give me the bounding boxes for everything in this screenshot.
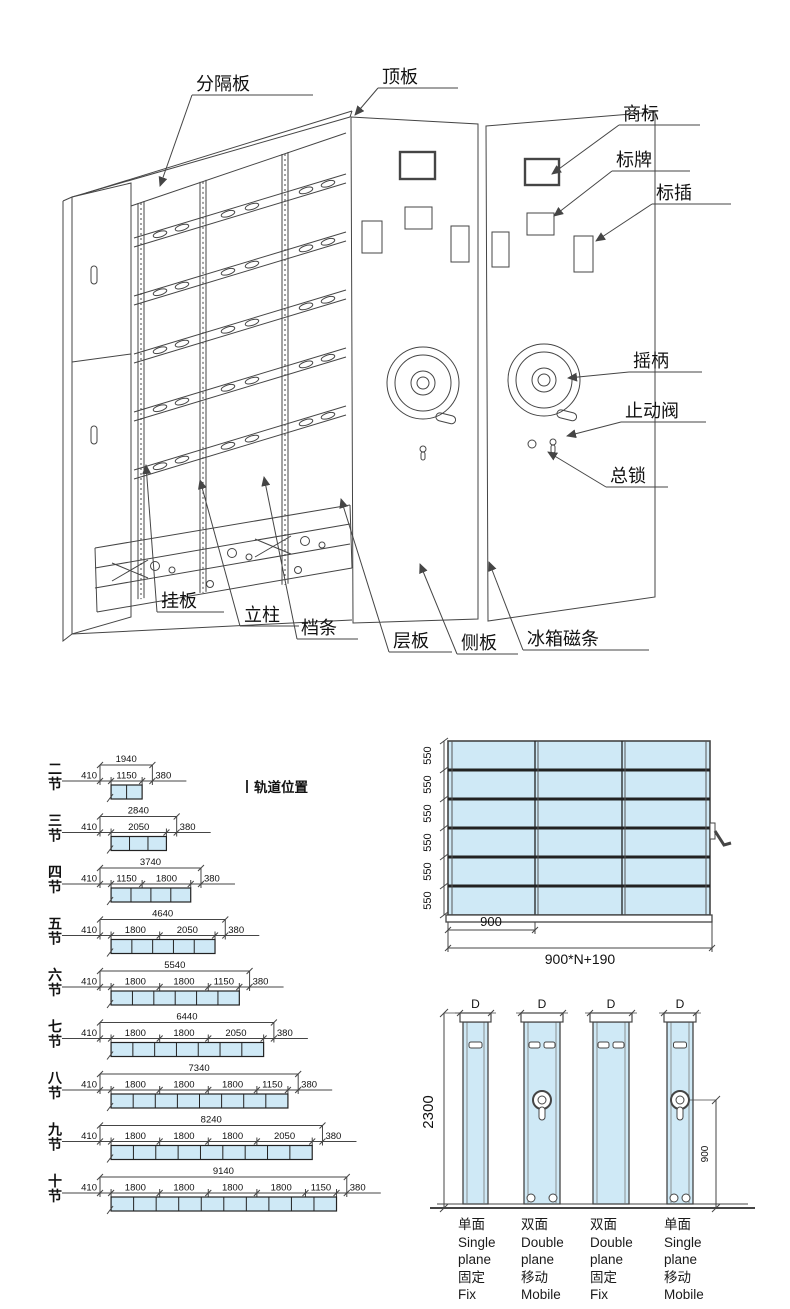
- side-view-diagram: DDDD2300900: [420, 997, 755, 1212]
- caption-line: Single: [458, 1234, 528, 1252]
- caption-line: 移动: [664, 1269, 734, 1287]
- crank-wheel: [387, 347, 459, 419]
- caption-line: 双面: [590, 1216, 660, 1234]
- caption-line: Mobile: [664, 1286, 734, 1304]
- leader-dingban: [355, 88, 378, 115]
- crank-wheel: [508, 344, 580, 416]
- seg-dim: 380: [204, 874, 220, 885]
- label-zongsuo: 总锁: [610, 466, 646, 486]
- pitch-dim: 550: [422, 804, 434, 822]
- label-zhidongfa: 止动阀: [625, 401, 679, 421]
- leader-yaobing: [568, 372, 629, 378]
- row-label: 八: [47, 1070, 63, 1086]
- row-label: 节: [48, 931, 62, 947]
- side-view-column-1: D: [455, 997, 496, 1204]
- seg-dim: 380: [350, 1183, 366, 1194]
- seg-dim: 1150: [262, 1080, 282, 1091]
- row-label: 六: [48, 967, 62, 983]
- caption-line: 固定: [458, 1269, 528, 1287]
- size-row-七节: 七节6440410180018002050380: [48, 1012, 308, 1060]
- shelving-unit-drawing: [63, 111, 655, 641]
- seg-dim: 1800: [173, 1028, 194, 1039]
- total-dim: 3740: [140, 857, 161, 868]
- pitch-dim: 550: [422, 746, 434, 764]
- seg-dim: 410: [81, 822, 97, 833]
- seg-dim: 1800: [271, 1183, 292, 1194]
- total-dim: 9140: [213, 1166, 234, 1177]
- depth-label: D: [538, 997, 547, 1011]
- part-labels: 分隔板顶板商标标牌标插摇柄止动阀总锁挂板立柱档条层板侧板冰箱磁条: [146, 67, 731, 654]
- label-biaopai: 标牌: [616, 150, 652, 170]
- size-row-六节: 六节5540410180018001150380: [48, 960, 284, 1008]
- door-handle: [91, 266, 97, 284]
- side-view-column-4: D: [659, 997, 701, 1204]
- bay-width-dim: 900: [480, 914, 502, 929]
- seg-dim: 1800: [125, 1183, 146, 1194]
- caption-line: plane: [521, 1251, 591, 1269]
- stop-valve: [528, 440, 536, 448]
- size-row-五节: 五节464041018002050380: [48, 909, 259, 957]
- seg-dim: 1150: [116, 771, 136, 782]
- caption-col-4: 单面Singleplane移动Mobile: [664, 1216, 734, 1304]
- pitch-dim: 550: [422, 862, 434, 880]
- seg-dim: 380: [155, 771, 171, 782]
- row-label: 节: [48, 982, 62, 998]
- diagram-canvas: 分隔板顶板商标标牌标插摇柄止动阀总锁挂板立柱档条层板侧板冰箱磁条二节194041…: [0, 0, 790, 1309]
- seg-dim: 1800: [173, 1131, 194, 1142]
- height-dim: 2300: [420, 1095, 437, 1128]
- label-dangtiao: 档条: [301, 618, 337, 638]
- size-row-十节: 十节914041018001800180018001150380: [48, 1166, 381, 1214]
- seg-dim: 380: [325, 1131, 341, 1142]
- seg-dim: 1800: [125, 977, 146, 988]
- side-panel-1: [351, 117, 478, 623]
- caption-line: 单面: [458, 1216, 528, 1234]
- row-label: 节: [48, 828, 62, 844]
- total-dim: 8240: [201, 1115, 222, 1126]
- row-label: 七: [48, 1019, 62, 1035]
- pitch-dim: 550: [422, 775, 434, 793]
- label-biaocha: 标插: [656, 183, 692, 203]
- seg-dim: 1800: [125, 925, 146, 936]
- total-dim: 7340: [189, 1063, 210, 1074]
- side-view-column-2: D: [516, 997, 568, 1204]
- total-dim: 1940: [116, 754, 137, 765]
- row-label: 节: [48, 1188, 62, 1204]
- size-row-二节: 二节19404101150380: [48, 754, 186, 802]
- label-cengban: 层板: [393, 631, 429, 651]
- row-label: 五: [48, 916, 62, 932]
- total-dim: 4640: [152, 909, 173, 920]
- caption-line: Double: [590, 1234, 660, 1252]
- trademark-plate: [400, 152, 435, 179]
- seg-dim: 1150: [311, 1183, 331, 1194]
- seg-dim: 1800: [173, 1080, 194, 1091]
- seg-dim: 410: [81, 1028, 97, 1039]
- label-fengeban: 分隔板: [196, 74, 250, 94]
- pitch-dim: 550: [422, 833, 434, 851]
- size-row-八节: 八节73404101800180018001150380: [47, 1063, 332, 1111]
- caption-col-1: 单面Singleplane固定Fix: [458, 1216, 528, 1304]
- seg-dim: 410: [81, 977, 97, 988]
- seg-dim: 380: [277, 1028, 293, 1039]
- row-label: 节: [48, 1034, 62, 1050]
- seg-dim: 380: [180, 822, 196, 833]
- front-view-diagram: 550550550550550550900900*N+190: [422, 738, 731, 967]
- depth-label: D: [607, 997, 616, 1011]
- seg-dim: 410: [81, 1131, 97, 1142]
- label-guaban: 挂板: [161, 591, 197, 611]
- caption-line: 单面: [664, 1216, 734, 1234]
- caption-line: 双面: [521, 1216, 591, 1234]
- caption-line: plane: [664, 1251, 734, 1269]
- size-row-三节: 三节28404102050380: [48, 806, 211, 854]
- wheel-foot: [670, 1194, 678, 1202]
- caption-col-3: 双面Doubleplane固定Fix: [590, 1216, 660, 1304]
- seg-dim: 1800: [125, 1080, 146, 1091]
- seg-dim: 2050: [274, 1131, 295, 1142]
- caption-line: 移动: [521, 1269, 591, 1287]
- seg-dim: 1800: [173, 977, 194, 988]
- seg-dim: 380: [253, 977, 269, 988]
- caption-line: 固定: [590, 1269, 660, 1287]
- total-width-dim: 900*N+190: [545, 951, 616, 967]
- seg-dim: 1800: [173, 1183, 194, 1194]
- row-label: 节: [48, 776, 62, 792]
- size-row-九节: 九节82404101800180018002050380: [47, 1115, 356, 1163]
- caption-line: Fix: [458, 1286, 528, 1304]
- total-dim: 5540: [164, 960, 185, 971]
- crank-icon: [533, 1091, 551, 1109]
- shelf-bar: [111, 1146, 312, 1160]
- seg-dim: 1800: [222, 1080, 243, 1091]
- crank-height-dim: 900: [700, 1145, 711, 1162]
- label-dingban: 顶板: [382, 67, 418, 87]
- seg-dim: 2050: [128, 822, 149, 833]
- crank-icon: [671, 1091, 689, 1109]
- row-label: 十: [48, 1173, 62, 1189]
- leader-biaopai: [554, 171, 612, 216]
- side-panel-2: [486, 112, 655, 621]
- seg-dim: 410: [81, 1080, 97, 1091]
- row-label: 节: [48, 1085, 62, 1101]
- wheel-foot: [527, 1194, 535, 1202]
- label-shangbiao: 商标: [623, 104, 659, 124]
- seg-dim: 1800: [222, 1183, 243, 1194]
- caption-line: plane: [458, 1251, 528, 1269]
- caption-line: Double: [521, 1234, 591, 1252]
- seg-dim: 2050: [225, 1028, 246, 1039]
- caption-line: Fix: [590, 1286, 660, 1304]
- shelf-bar: [111, 940, 215, 954]
- label-lizhu: 立柱: [244, 605, 280, 625]
- seg-dim: 380: [228, 925, 244, 936]
- seg-dim: 380: [301, 1080, 317, 1091]
- leader-guaban: [146, 465, 157, 612]
- row-label: 三: [48, 813, 62, 829]
- seg-dim: 2050: [177, 925, 198, 936]
- label-ceban: 侧板: [461, 633, 497, 653]
- depth-label: D: [471, 997, 480, 1011]
- caption-line: plane: [590, 1251, 660, 1269]
- leader-zongsuo: [548, 452, 606, 487]
- seg-dim: 1800: [222, 1131, 243, 1142]
- seg-dim: 1800: [125, 1131, 146, 1142]
- total-dim: 2840: [128, 806, 149, 817]
- track-note: 轨道位置: [246, 776, 308, 796]
- row-label: 四: [48, 864, 62, 880]
- shelf-bar: [111, 837, 166, 851]
- depth-label: D: [676, 997, 685, 1011]
- door-handle: [91, 426, 97, 444]
- seg-dim: 1150: [214, 977, 234, 988]
- leader-biaocha: [596, 204, 652, 241]
- wheel-foot: [549, 1194, 557, 1202]
- seg-dim: 410: [81, 874, 97, 885]
- caption-line: Mobile: [521, 1286, 591, 1304]
- leader-shangbiao: [552, 125, 619, 174]
- total-dim: 6440: [176, 1012, 197, 1023]
- leader-fengeban: [160, 95, 192, 186]
- size-row-四节: 四节374041011501800380: [48, 857, 235, 905]
- label-yaobing: 摇柄: [633, 351, 669, 371]
- row-label: 节: [48, 1137, 62, 1153]
- side-view-column-3: D: [585, 997, 637, 1204]
- seg-dim: 1150: [116, 874, 136, 885]
- row-label: 节: [48, 879, 62, 895]
- pitch-dim: 550: [422, 891, 434, 909]
- row-label: 九: [47, 1122, 62, 1138]
- size-chart: 二节19404101150380三节28404102050380四节374041…: [47, 754, 381, 1214]
- seg-dim: 410: [81, 1183, 97, 1194]
- seg-dim: 410: [81, 771, 97, 782]
- leader-zhidongfa: [567, 422, 621, 436]
- seg-dim: 1800: [156, 874, 177, 885]
- seg-dim: 410: [81, 925, 97, 936]
- leader-cengban: [341, 499, 389, 652]
- caption-line: Single: [664, 1234, 734, 1252]
- label-bingxiangcitiao: 冰箱磁条: [527, 629, 599, 649]
- wheel-foot: [682, 1194, 690, 1202]
- row-label: 二: [48, 761, 62, 777]
- caption-col-2: 双面Doubleplane移动Mobile: [521, 1216, 591, 1304]
- shelf-bar: [111, 1043, 264, 1057]
- assembly-diagram: 分隔板顶板商标标牌标插摇柄止动阀总锁挂板立柱档条层板侧板冰箱磁条二节194041…: [0, 0, 790, 1309]
- seg-dim: 1800: [125, 1028, 146, 1039]
